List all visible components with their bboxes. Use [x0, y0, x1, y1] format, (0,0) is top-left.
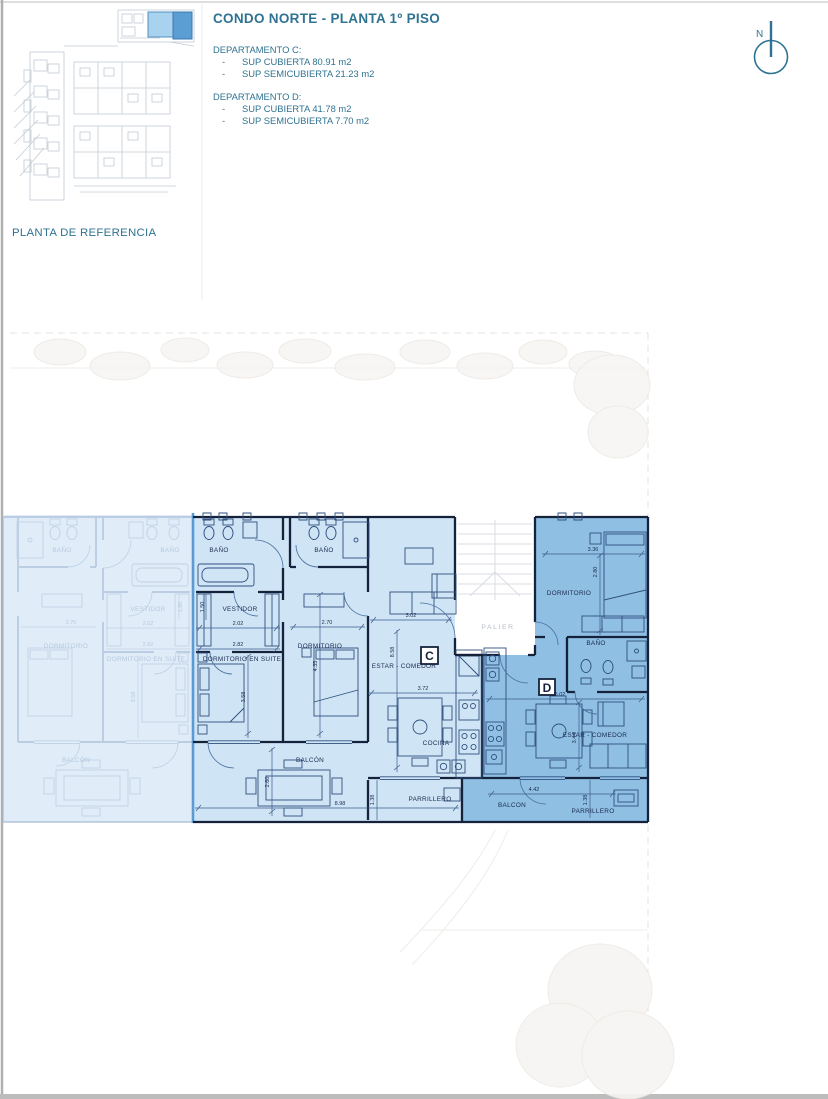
department-d-heading: DEPARTAMENTO D:: [213, 91, 301, 102]
room-label: PARRILLERO: [408, 796, 451, 803]
room-label: VESTIDOR: [222, 606, 257, 613]
unit-d-tag: D: [539, 679, 555, 695]
room-label: PARRILLERO: [571, 808, 614, 815]
dimension-label: 2.80: [593, 567, 599, 578]
room-label: BAÑO: [52, 545, 71, 554]
dimension-label: 2.70: [66, 620, 77, 626]
room-label: BAÑO: [209, 545, 228, 554]
room-label: BAÑO: [586, 638, 605, 647]
unit-c-tag: C: [421, 647, 438, 664]
floor-plan: BAÑO BAÑO VESTIDOR DORMITORIO DORMITORIO…: [3, 513, 648, 823]
dimension-label: 1.38: [583, 795, 589, 806]
dimension-label: 2.02: [233, 621, 244, 627]
drawing-sheet: PLANTA DE REFERENCIA CONDO NORTE - PLANT…: [0, 0, 828, 1099]
dimension-label: 2.60: [265, 777, 271, 788]
dimension-label: 1.50: [178, 602, 184, 613]
dimension-label: 5.02: [555, 692, 566, 698]
title-block: CONDO NORTE - PLANTA 1º PISO DEPARTAMENT…: [213, 11, 440, 126]
svg-text:-: -: [222, 115, 225, 126]
dimension-label: 4.35: [313, 661, 319, 672]
thumbnail-unit-c-highlight: [148, 12, 173, 37]
north-compass-icon: N: [755, 21, 788, 74]
north-label: N: [756, 29, 763, 40]
room-label: DORMITORIO EN SUITE: [203, 656, 281, 663]
dimension-label: 2.70: [322, 620, 333, 626]
dimension-label: 8.98: [335, 801, 346, 807]
sheet-title: CONDO NORTE - PLANTA 1º PISO: [213, 11, 440, 26]
svg-text:C: C: [425, 649, 434, 663]
department-d-sup-cubierta: SUP CUBIERTA 41.78 m2: [242, 103, 351, 114]
dimension-label: 1.38: [370, 795, 376, 806]
dimension-label: 8.58: [390, 647, 396, 658]
department-d-sup-semicubierta: SUP SEMICUBIERTA 7.70 m2: [242, 115, 369, 126]
svg-text:-: -: [222, 56, 225, 67]
reference-plan-thumbnail: [14, 10, 194, 200]
room-label: BAÑO: [160, 545, 179, 554]
thumbnail-unit-d-highlight: [173, 12, 192, 39]
room-label: BALCÓN: [62, 755, 90, 764]
dimension-label: 3.36: [588, 547, 599, 553]
room-label: BALCON: [498, 802, 526, 809]
dimension-label: 3.02: [406, 613, 417, 619]
department-c-sup-cubierta: SUP CUBIERTA 80.91 m2: [242, 56, 351, 67]
department-c-heading: DEPARTAMENTO C:: [213, 44, 301, 55]
department-c-sup-semicubierta: SUP SEMICUBIERTA 21.23 m2: [242, 68, 374, 79]
room-label: DORMITORIO EN SUITE: [107, 656, 185, 663]
room-label: DORMITORIO: [44, 643, 88, 650]
dimension-label: 3.44: [572, 733, 578, 744]
dimension-label: 3.58: [131, 692, 137, 703]
unit-c-area: [193, 517, 482, 822]
room-label: BALCÓN: [296, 755, 324, 764]
dimension-label: 1.50: [200, 602, 206, 613]
dimension-label: 2.82: [233, 642, 244, 648]
dimension-label: 2.02: [143, 621, 154, 627]
svg-text:-: -: [222, 68, 225, 79]
svg-text:-: -: [222, 103, 225, 114]
room-label: VESTIDOR: [130, 606, 165, 613]
svg-text:D: D: [543, 681, 552, 695]
palier-label: PALIER: [481, 624, 514, 631]
room-label: COCINA: [423, 740, 450, 747]
reference-plan-caption: PLANTA DE REFERENCIA: [12, 227, 157, 239]
dimension-label: 4.42: [529, 787, 540, 793]
dimension-label: 3.58: [241, 692, 247, 703]
room-label: DORMITORIO: [298, 643, 342, 650]
dimension-label: 2.82: [143, 642, 154, 648]
room-label: BAÑO: [314, 545, 333, 554]
dimension-label: 3.72: [418, 686, 429, 692]
room-label: DORMITORIO: [547, 590, 591, 597]
